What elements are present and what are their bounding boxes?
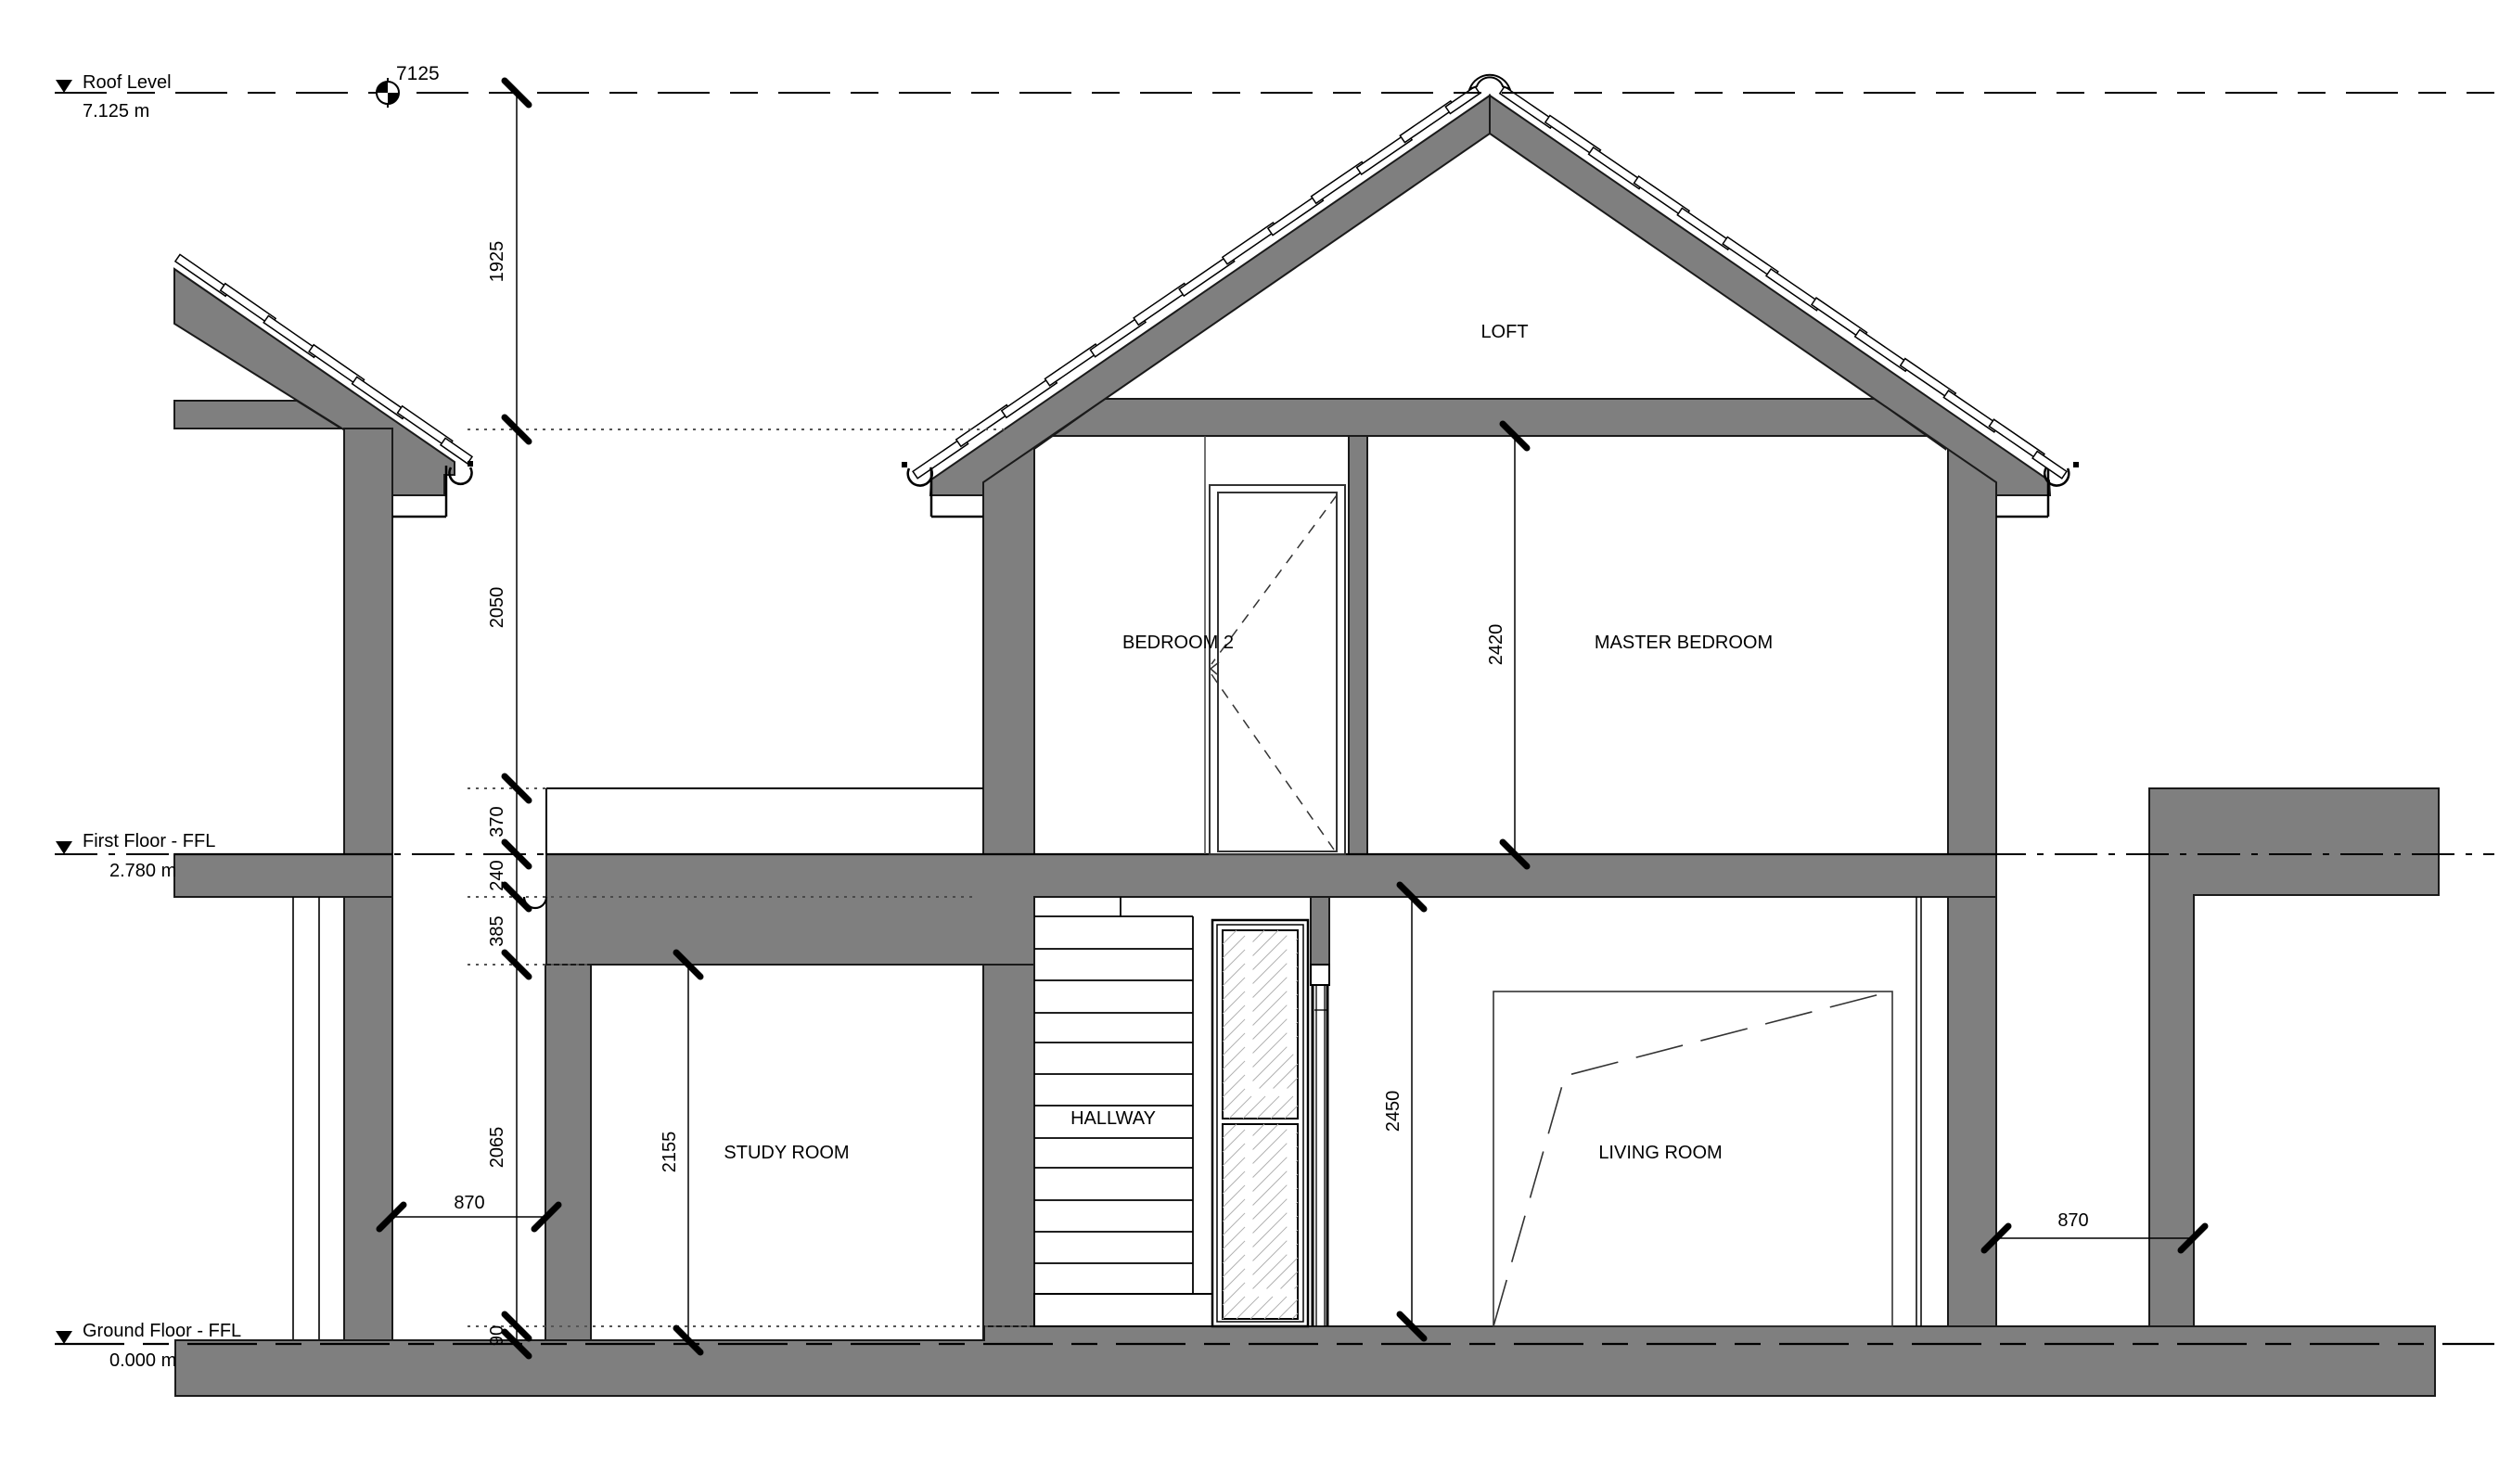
svg-text:870: 870 xyxy=(2057,1210,2088,1231)
svg-text:90: 90 xyxy=(487,1325,507,1346)
svg-text:HALLWAY: HALLWAY xyxy=(1070,1108,1156,1129)
svg-text:2050: 2050 xyxy=(487,587,507,629)
svg-text:0.000 m: 0.000 m xyxy=(109,1350,176,1371)
svg-text:LIVING ROOM: LIVING ROOM xyxy=(1598,1143,1722,1163)
svg-text:2420: 2420 xyxy=(1486,624,1506,666)
svg-text:240: 240 xyxy=(487,860,507,890)
svg-text:Roof Level: Roof Level xyxy=(83,72,172,93)
svg-text:First Floor - FFL: First Floor - FFL xyxy=(83,831,215,851)
svg-text:2065: 2065 xyxy=(487,1127,507,1169)
svg-text:1925: 1925 xyxy=(487,241,507,283)
svg-text:BEDROOM 2: BEDROOM 2 xyxy=(1122,633,1234,653)
svg-text:7.125 m: 7.125 m xyxy=(83,101,149,122)
svg-text:MASTER BEDROOM: MASTER BEDROOM xyxy=(1595,633,1773,653)
svg-text:870: 870 xyxy=(454,1193,484,1213)
svg-text:2.780 m: 2.780 m xyxy=(109,861,176,881)
svg-text:385: 385 xyxy=(487,915,507,946)
svg-text:STUDY ROOM: STUDY ROOM xyxy=(724,1143,849,1163)
svg-text:2155: 2155 xyxy=(660,1132,680,1173)
svg-text:Ground Floor - FFL: Ground Floor - FFL xyxy=(83,1321,241,1341)
svg-text:7125: 7125 xyxy=(396,63,440,84)
svg-text:2450: 2450 xyxy=(1383,1091,1403,1132)
svg-text:370: 370 xyxy=(487,806,507,837)
svg-text:LOFT: LOFT xyxy=(1480,322,1528,342)
